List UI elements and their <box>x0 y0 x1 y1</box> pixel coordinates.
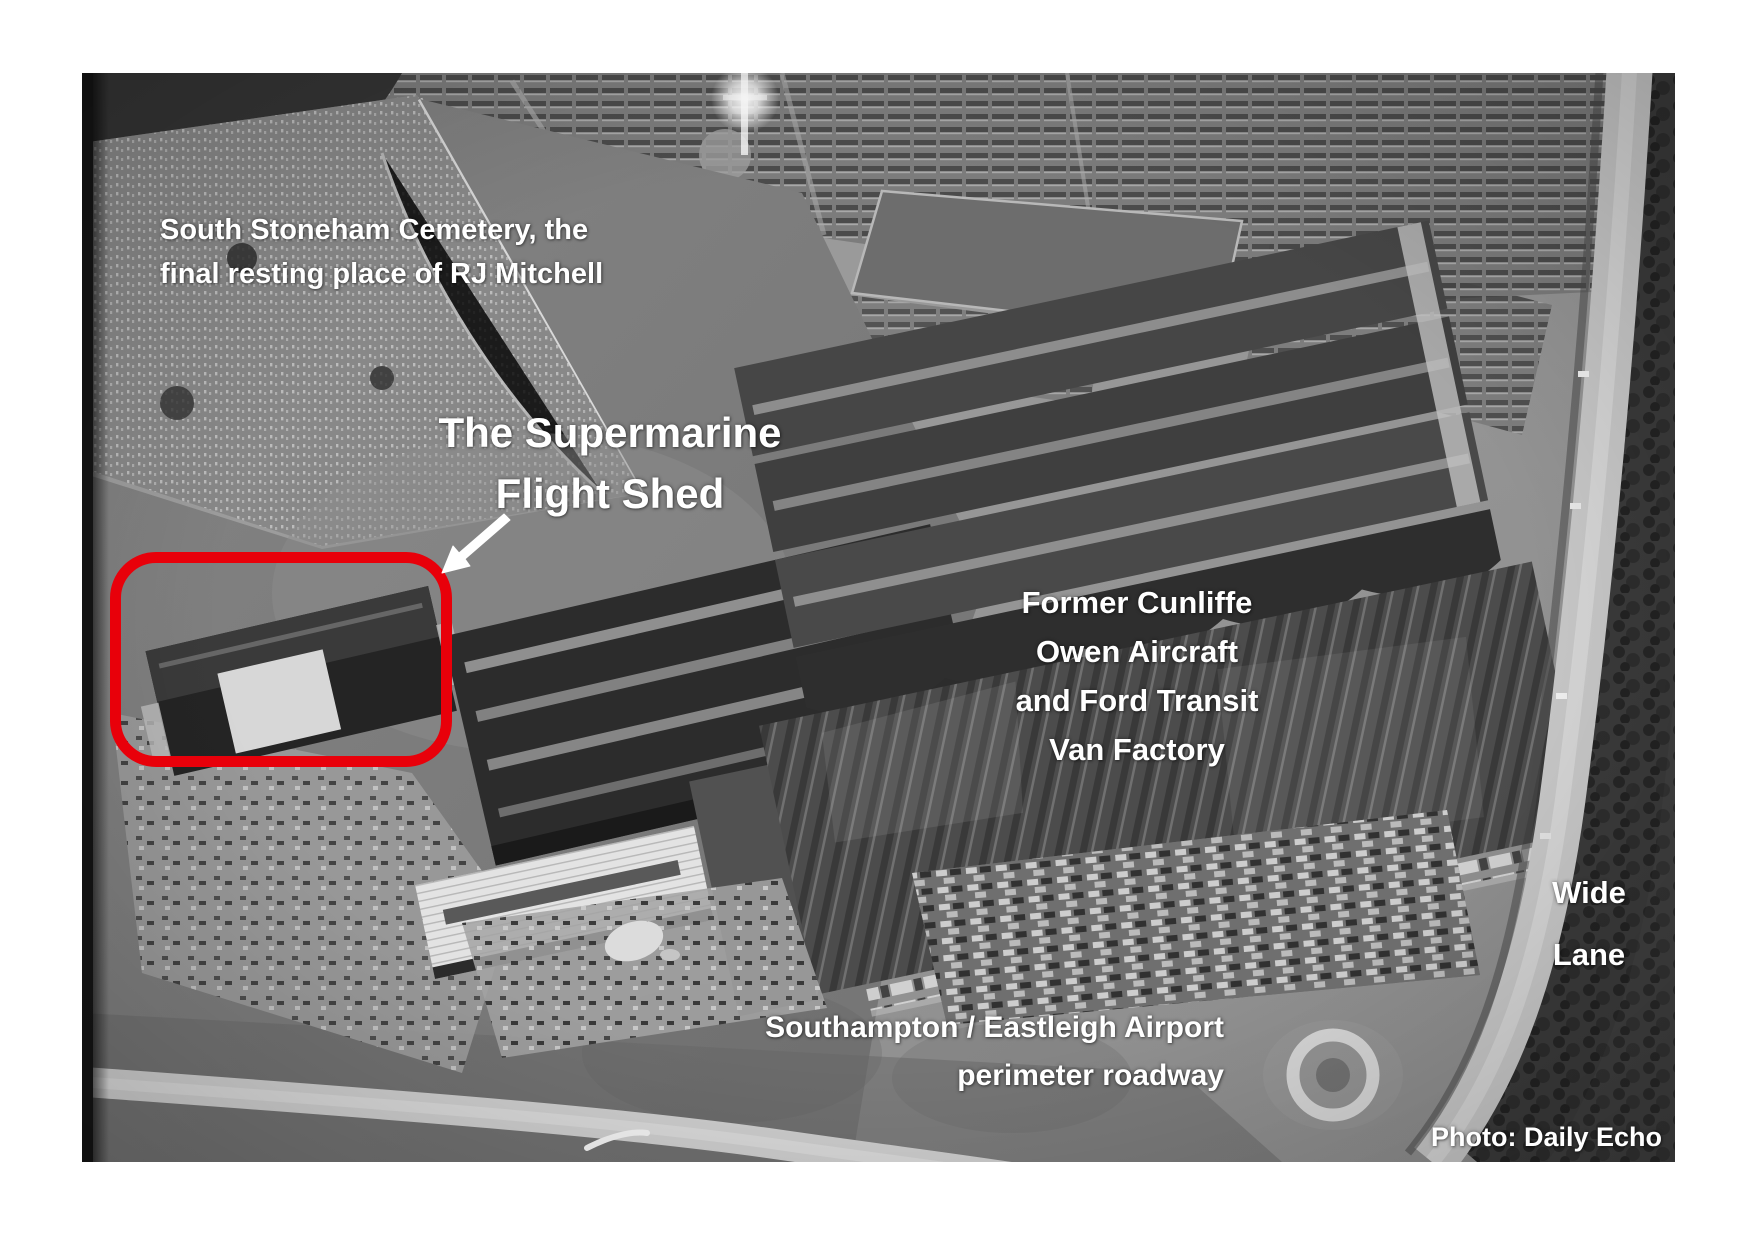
perimeter-road-label: Southampton / Eastleigh Airport perimete… <box>704 1004 1224 1100</box>
cemetery-label-line2: final resting place of RJ Mitchell <box>160 252 603 296</box>
flight-shed-label-line1: The Supermarine <box>400 402 820 463</box>
wide-lane-label-line2: Lane <box>1509 924 1669 986</box>
flight-shed-label: The Supermarine Flight Shed <box>400 402 820 524</box>
factory-label: Former Cunliffe Owen Aircraft and Ford T… <box>977 578 1297 774</box>
wide-lane-label-line1: Wide <box>1509 862 1669 924</box>
factory-label-line3: and Ford Transit <box>977 676 1297 725</box>
perimeter-road-label-line2: perimeter roadway <box>704 1052 1224 1100</box>
perimeter-road-label-line1: Southampton / Eastleigh Airport <box>704 1004 1224 1052</box>
factory-label-line4: Van Factory <box>977 725 1297 774</box>
flight-shed-label-line2: Flight Shed <box>400 463 820 524</box>
photo-credit: Photo: Daily Echo <box>1342 1121 1662 1153</box>
cemetery-label-line1: South Stoneham Cemetery, the <box>160 208 603 252</box>
factory-label-line1: Former Cunliffe <box>977 578 1297 627</box>
factory-label-line2: Owen Aircraft <box>977 627 1297 676</box>
page: South Stoneham Cemetery, the final resti… <box>0 0 1754 1240</box>
aerial-photo: South Stoneham Cemetery, the final resti… <box>82 73 1675 1162</box>
wide-lane-label: Wide Lane <box>1509 862 1669 986</box>
highlight-box <box>110 552 452 767</box>
cemetery-label: South Stoneham Cemetery, the final resti… <box>160 208 603 296</box>
